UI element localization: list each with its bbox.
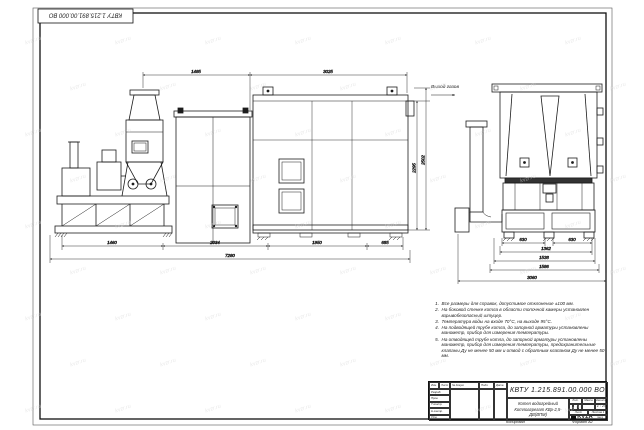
note-item: 5.На отводящей трубе котла, до запорной … [432,337,609,359]
note-item: 3.Температура воды на входе 70°С, на вых… [432,319,609,325]
note-number: 2. [432,307,439,318]
gas-outlet-label: Выход газов [431,84,459,90]
dim-top-2: 3025 [323,69,333,74]
dim-end-1586: 1586 [539,264,549,269]
copied-label: Копировал [506,420,525,424]
end-view [455,84,603,241]
tb-col-podp: Подп. [479,382,494,389]
tb-col-list: Лист [439,382,450,389]
note-item: 1.Все размеры для справок, допустимое от… [432,301,609,307]
dim-bottom-3: 1950 [312,240,322,245]
tb-name-cell: Котел водогрейный Котлоагрегат КВр-2,5-Д… [507,398,569,421]
dim-end-1362: 1362 [541,246,551,251]
gas-duct-pipe [455,121,502,232]
fan-cyclone-unit [55,90,172,233]
flue-box [174,108,252,243]
note-text: Все размеры для справок, допустимое откл… [442,301,574,307]
drawing-sheet: { "colors": { "line": "#1c1c1c", "waterm… [0,0,644,430]
tb-company-sub2: ЗАВОД [595,418,606,420]
end-view-dimensions: 630 630 1362 1538 1586 3060 [458,234,606,284]
title-block: Изм. Лист № докум. Подп. Дата Разраб. Пр… [428,381,607,420]
note-number: 5. [432,337,439,359]
note-item: 4.На подводящей трубе котла, до запорной… [432,325,609,336]
note-text: Температура воды на входе 70°С, на выход… [442,319,553,325]
tb-col-data: Дата [494,382,507,389]
doc-number-stamp: КВТУ 1.215.891.00.000 ВО [38,9,133,23]
dim-height-1: 2295 [412,163,417,174]
note-number: 1. [432,301,439,307]
dim-height-2: 2502 [421,155,426,166]
notes-block: 1.Все размеры для справок, допустимое от… [432,301,609,359]
side-view [55,87,414,243]
dim-bottom-4: 685 [381,240,389,245]
dim-end-overall: 3060 [527,275,537,280]
tb-sheets-label: Листов [592,411,602,414]
tb-sign-cells [479,389,494,421]
tb-row-utv: Утв. [429,415,450,421]
note-item: 2.На боковой стенке котла в области топо… [432,307,609,318]
dim-end-630b: 630 [568,237,576,242]
boiler-side [253,87,414,233]
tb-doc-number: КВТУ 1.215.891.00.000 ВО [507,382,608,398]
foundation-hatch [55,233,402,240]
dim-top-1: 1485 [191,69,201,74]
dim-end-1538: 1538 [539,255,549,260]
note-text: На подводящей трубе котла, до запорной а… [442,325,610,336]
side-view-dimensions: 1485 3025 2295 2502 1460 2034 1950 685 7… [50,69,430,263]
dim-end-630a: 630 [519,237,527,242]
note-text: На отводящей трубе котла, до запорной ар… [442,337,610,359]
tb-title-line2: Котлоагрегат КВр-2,5-ДВ(ВПМ) [508,407,568,418]
tb-sheets-value: 1 [603,411,605,414]
tb-col-izm: Изм. [429,382,439,389]
dim-bottom-2: 2034 [209,240,220,245]
note-text: На боковой стенке котла в области топочн… [442,307,610,318]
technical-drawing: КВТУ 1.215.891.00.000 ВО [0,0,644,430]
gas-outlet-annotation: Выход газов [431,84,459,95]
dim-overall-length: 7280 [225,253,235,258]
note-number: 3. [432,319,439,325]
tb-company-sub: КОТЕЛЬНЫЙ ЗАВОД [595,416,606,420]
tb-sign-cells [494,389,507,421]
tb-col-dokum: № докум. [450,382,479,389]
note-number: 4. [432,325,439,336]
stamp-doc-number: КВТУ 1.215.891.00.000 ВО [49,12,123,18]
tb-sign-cells [450,389,479,421]
dim-bottom-1: 1460 [107,240,117,245]
format-label: Формат А2 [572,420,593,424]
